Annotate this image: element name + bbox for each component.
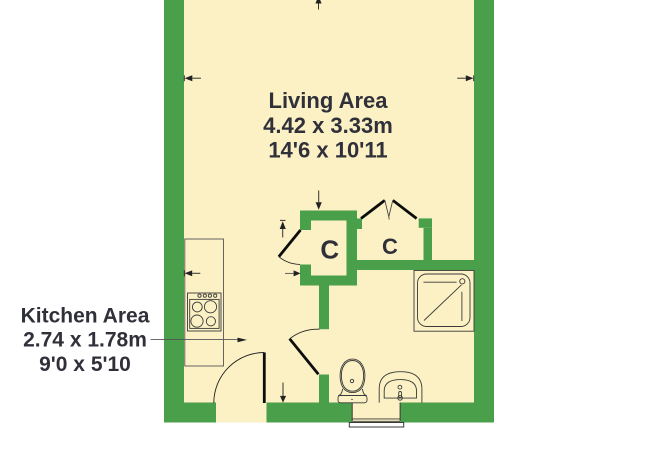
svg-text:C: C (382, 234, 398, 259)
svg-text:4.42 x 3.33m: 4.42 x 3.33m (263, 113, 393, 138)
svg-text:2.74 x 1.78m: 2.74 x 1.78m (23, 329, 147, 352)
svg-text:Kitchen Area: Kitchen Area (21, 304, 150, 327)
svg-text:Living Area: Living Area (269, 88, 389, 113)
svg-text:14'6 x 10'11: 14'6 x 10'11 (268, 137, 387, 162)
svg-text:C: C (320, 234, 339, 264)
svg-text:9'0 x 5'10: 9'0 x 5'10 (39, 353, 131, 376)
